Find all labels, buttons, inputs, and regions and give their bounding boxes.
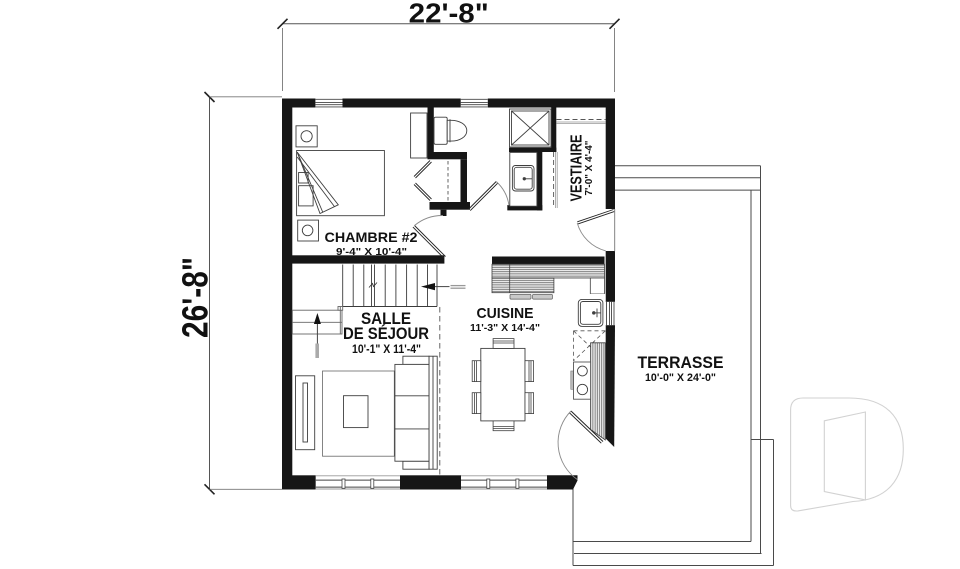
svg-text:10'-0" X 24'-0": 10'-0" X 24'-0" [645,372,716,384]
svg-text:CHAMBRE #2: CHAMBRE #2 [325,229,418,245]
svg-text:9'-4" X 10'-4": 9'-4" X 10'-4" [336,246,407,258]
svg-text:CUISINE: CUISINE [477,305,534,322]
svg-text:7'-0" X 4'-4": 7'-0" X 4'-4" [583,140,595,195]
svg-text:TERRASSE: TERRASSE [638,354,724,372]
svg-text:DE SÉJOUR: DE SÉJOUR [343,324,429,343]
svg-text:10'-1" X 11'-4": 10'-1" X 11'-4" [352,344,421,356]
svg-text:11'-3" X 14'-4": 11'-3" X 14'-4" [470,322,540,334]
